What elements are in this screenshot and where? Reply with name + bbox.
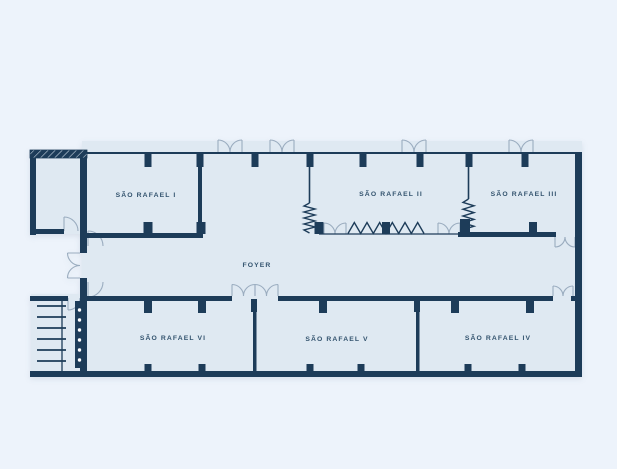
pillar-foyer-south — [319, 299, 327, 313]
floorplan-canvas: SÃO RAFAEL ISÃO RAFAEL IISÃO RAFAEL IIIF… — [0, 0, 617, 469]
foyer-south-wall-west — [80, 296, 232, 301]
sr3-south-wall — [458, 232, 556, 237]
pillar-bottom-wall — [145, 364, 152, 372]
bottom-wall — [30, 371, 582, 377]
pillar-bottom-wall — [307, 364, 314, 372]
pillar-top-wall — [360, 152, 367, 167]
stair-wall-dot — [78, 348, 81, 351]
pillar-sr2-south — [460, 219, 470, 234]
pillar-foyer-south — [451, 299, 459, 313]
pillar-bottom-wall — [199, 364, 206, 372]
pillar-top-wall — [197, 152, 204, 167]
stair-wall-dot — [78, 318, 81, 321]
annex-bottom-wall — [30, 229, 64, 234]
pillar-foyer-south — [526, 299, 534, 313]
pillar-top-wall — [145, 152, 152, 167]
pillar-sr2-south — [315, 222, 324, 234]
divider-sr6-sr5 — [253, 299, 257, 373]
pillar-foyer-south — [144, 299, 152, 313]
pillar-top-wall — [522, 152, 529, 167]
stair-wall-dot — [78, 308, 81, 311]
pillar-top-wall — [466, 152, 473, 167]
door-swing-west-exit — [68, 253, 81, 266]
stairwell-north-wall — [30, 296, 68, 301]
pillar-sr1-south — [144, 222, 153, 234]
top-wall — [87, 152, 578, 154]
room-label-sr5: SÃO RAFAEL V — [305, 334, 368, 343]
pillar-sr3-south — [529, 222, 537, 233]
room-label-sr1: SÃO RAFAEL I — [116, 190, 177, 199]
room-label-sr2: SÃO RAFAEL II — [359, 189, 423, 198]
pillar-sr1-south — [197, 222, 206, 234]
room-label-sr3: SÃO RAFAEL III — [491, 189, 558, 198]
room-label-sr4: SÃO RAFAEL IV — [465, 333, 531, 342]
stair-wall-dot — [78, 358, 81, 361]
pillar-foyer-south — [198, 299, 206, 313]
room-label-foyer: FOYER — [243, 262, 272, 269]
door-swing-west-exit — [68, 266, 81, 279]
room-label-sr6: SÃO RAFAEL VI — [140, 333, 206, 342]
stair-wall-dot — [78, 328, 81, 331]
right-wall — [575, 152, 582, 377]
floorplan: SÃO RAFAEL ISÃO RAFAEL IISÃO RAFAEL IIIF… — [0, 0, 617, 469]
left-wall-upper — [80, 151, 87, 253]
pillar-top-wall — [252, 152, 259, 167]
pillar-bottom-wall — [519, 364, 526, 372]
stair-wall-dot — [78, 338, 81, 341]
pillar-bottom-wall — [465, 364, 472, 372]
pillar-sr2-south — [382, 222, 390, 234]
annex-top-wall-hatched — [30, 150, 87, 158]
pillar-top-wall — [307, 152, 314, 167]
annex-left-wall — [30, 151, 36, 235]
pillar-bottom-wall — [358, 364, 365, 372]
divider-sr5-sr4 — [416, 299, 420, 373]
pillar-top-wall — [417, 152, 424, 167]
